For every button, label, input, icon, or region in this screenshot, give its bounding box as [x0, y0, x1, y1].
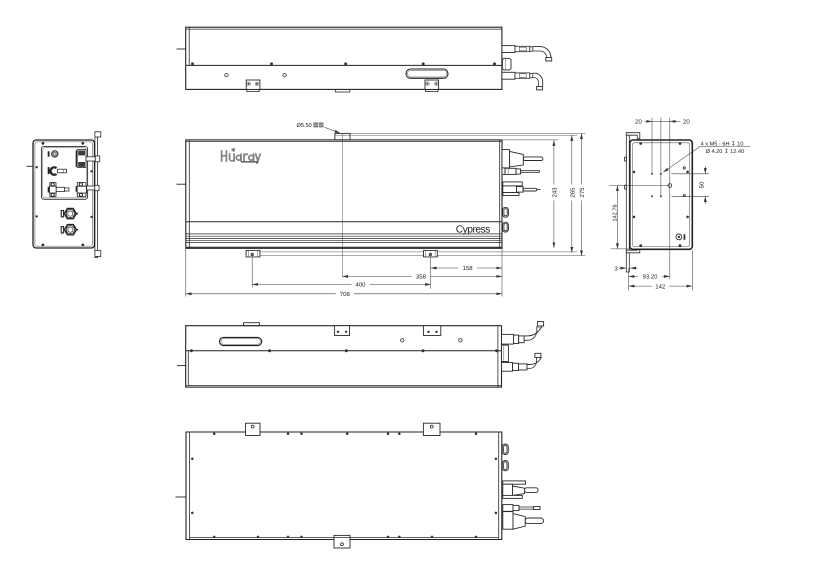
svg-text:358: 358	[416, 274, 427, 281]
svg-text:142.76: 142.76	[613, 204, 619, 221]
svg-text:400: 400	[355, 282, 366, 289]
svg-text:158: 158	[463, 265, 474, 272]
svg-text:275: 275	[579, 187, 586, 198]
svg-text:50: 50	[699, 181, 706, 188]
svg-text:20: 20	[635, 119, 642, 126]
svg-text:142: 142	[655, 283, 666, 290]
svg-text:3: 3	[614, 265, 618, 272]
svg-text:93.20: 93.20	[642, 274, 658, 281]
svg-text:20: 20	[683, 119, 690, 126]
svg-text:265: 265	[569, 187, 576, 198]
svg-text:Ø 4.20 ↧ 12.40: Ø 4.20 ↧ 12.40	[706, 148, 745, 155]
svg-text:Ø5.50: Ø5.50	[297, 123, 312, 129]
svg-text:243: 243	[551, 187, 558, 198]
svg-text:708: 708	[340, 291, 351, 298]
